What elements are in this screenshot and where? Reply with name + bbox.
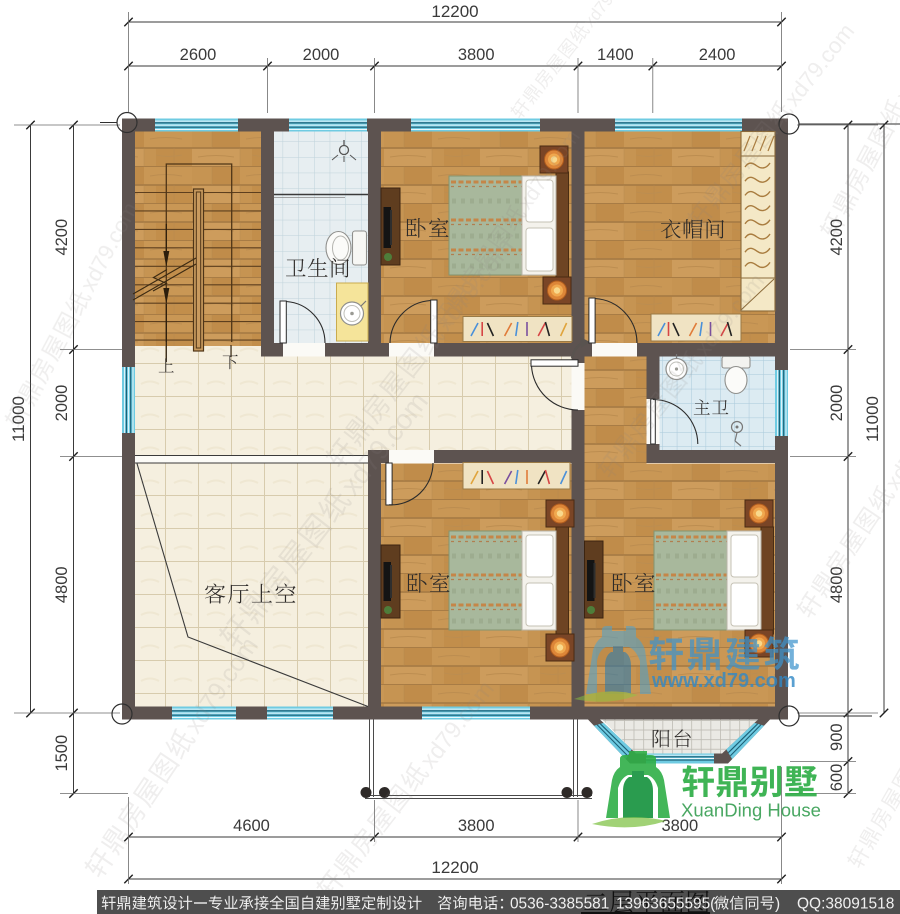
svg-text:XuanDing House: XuanDing House [681,800,821,821]
svg-text:13963655595(: 13963655595( [616,896,716,913]
svg-text:1400: 1400 [597,46,634,64]
svg-text:12200: 12200 [431,858,478,877]
svg-text:4800: 4800 [53,566,71,603]
svg-text:1500: 1500 [53,735,71,772]
svg-text:2400: 2400 [699,46,736,64]
svg-text:11000: 11000 [863,396,882,442]
svg-text:3800: 3800 [458,46,495,64]
svg-text:QQ:38091518: QQ:38091518 [797,896,894,913]
svg-text:2000: 2000 [828,385,846,422]
svg-text:11000: 11000 [9,396,28,442]
svg-text:3800: 3800 [458,817,495,835]
svg-text:2600: 2600 [180,46,217,64]
svg-text:4200: 4200 [53,219,71,256]
svg-text:2000: 2000 [303,46,340,64]
svg-text:): ) [775,896,780,913]
svg-text:12200: 12200 [431,2,478,21]
svg-text:900: 900 [828,723,846,751]
svg-text:4600: 4600 [233,817,270,835]
svg-text:2000: 2000 [53,385,71,422]
svg-text:600: 600 [828,764,846,792]
svg-text:www.xd79.com: www.xd79.com [651,670,796,692]
svg-text:0536-3385581: 0536-3385581 [510,896,609,913]
